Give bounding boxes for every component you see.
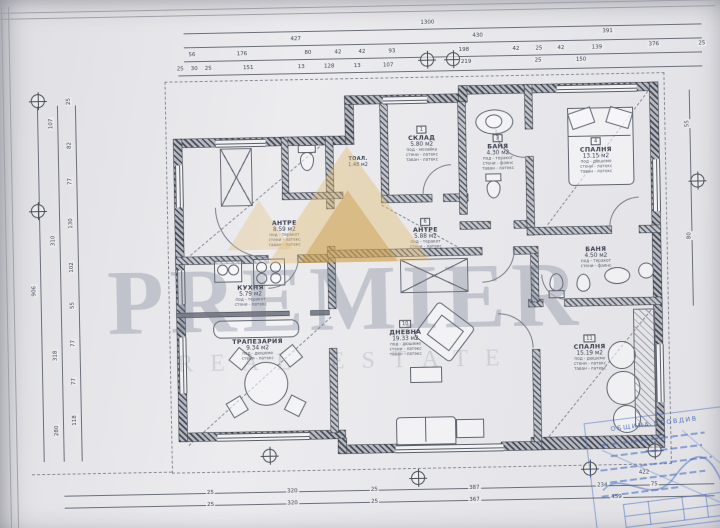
room-label-storage: 1 СКЛАД 5.80 м2 под - мозайка стени - ла…	[405, 115, 438, 162]
scanned-floor-plan-page: 1300427430391561768042429319842254213937…	[0, 0, 720, 528]
dimension-label: 25	[534, 57, 543, 63]
dimension-label: 13	[353, 63, 362, 69]
room-number-box: 1	[417, 126, 426, 134]
dimension-label: 176	[236, 51, 249, 57]
dimension-label: 427	[289, 36, 302, 42]
room-label-bath-top: 3 БАНЯ 4.30 м2 под - теракот стени - фая…	[481, 124, 514, 171]
dimension-label: 56	[187, 52, 196, 58]
room-number-box: 11	[583, 334, 596, 342]
dimension-label: 118	[72, 414, 78, 427]
room-finish: таван - латекс	[406, 157, 438, 162]
dimension-label: 77	[67, 177, 73, 186]
room-finish: таван - латекс	[390, 351, 422, 356]
dimension-label: 128	[323, 63, 336, 69]
dimension-label: 151	[242, 65, 255, 71]
room-label-living: 10 ДНЕВНА 19.33 м2 под - дюшеме стени - …	[389, 310, 422, 357]
dimension-label: 107	[382, 62, 395, 68]
dimension-label: 367	[468, 497, 481, 503]
drawing-sheet: 1300427430391561768042429319842254213937…	[0, 0, 720, 528]
dimension-label: 80	[303, 50, 312, 56]
dimension-label: 376	[648, 41, 661, 47]
stamp-signature-scribble	[585, 407, 720, 528]
dimension-label: 30	[190, 66, 199, 72]
room-label-bedroom-top: 4 СПАЛНЯ 13.15 м2 под - дюшеме стени - л…	[579, 127, 612, 174]
dimension-label: 25	[697, 40, 706, 46]
dimension-label: 107	[48, 118, 54, 131]
room-finish: стени - латекс	[410, 244, 442, 249]
dimension-label: 1300	[419, 20, 435, 26]
dimension-label: 25	[206, 490, 215, 496]
dimension-label: 42	[333, 49, 342, 55]
room-finish: стени - фаянс	[581, 264, 612, 269]
dimension-label: 102	[69, 261, 75, 274]
dimension-label: 25	[534, 45, 543, 51]
dimension-label: 25	[204, 66, 213, 72]
dimension-label: 82	[67, 141, 73, 150]
room-finish: таван - латекс	[269, 242, 301, 247]
dimension-label: 55	[70, 301, 76, 310]
dimension-label: 42	[556, 45, 565, 51]
dimension-label: 13	[297, 64, 306, 70]
room-label-hall-mid: 6 АНТРЕ 5.88 м2 под - теракот стени - ла…	[409, 208, 442, 250]
dimension-label: 318	[53, 350, 59, 363]
dimension-label: 387	[468, 485, 481, 491]
room-finish: таван - латекс	[574, 366, 606, 371]
room-label-dining: ТРАПЕЗАРИЯ 9.34 м2 под - дюшеме стени - …	[232, 338, 283, 362]
room-label-bath-right: БАНЯ 4.50 м2 под - теракот стени - фаянс	[580, 246, 611, 269]
room-area: 1.48 м2	[348, 162, 368, 168]
room-label-hall-left: АНТРЕ 8.59 м2 под - теракот стени - лате…	[268, 219, 301, 247]
dimension-label: 55	[684, 119, 690, 128]
dimension-label: 198	[458, 47, 471, 53]
dimension-label: 391	[601, 28, 614, 34]
room-finish: стени - латекс	[235, 302, 267, 307]
room-label-bedroom-bottom: 11 СПАЛНЯ 15.19 м2 под - дюшеме стени - …	[573, 324, 606, 371]
dimension-label: 219	[460, 59, 473, 65]
dimension-label: 25	[176, 66, 185, 72]
dimension-label: 139	[591, 44, 604, 50]
dimension-label: 42	[511, 46, 520, 52]
dimension-label: 77	[70, 339, 76, 348]
dimension-label: 25	[206, 502, 215, 508]
dimension-label: 42	[357, 49, 366, 55]
dimension-label: 150	[575, 57, 588, 63]
room-number-box: 10	[399, 320, 412, 328]
dimension-label: 280	[54, 425, 60, 438]
room-finish: таван - латекс	[580, 169, 612, 174]
room-number-box: 3	[493, 134, 502, 142]
dimension-label: 320	[286, 488, 299, 494]
dimension-label: 430	[471, 33, 484, 39]
dimension-label: 310	[50, 235, 56, 248]
dimension-label: 320	[286, 500, 299, 506]
dimension-label: 25	[370, 487, 379, 493]
room-number-box: 4	[591, 137, 600, 145]
dimension-label: 80	[686, 231, 692, 240]
dimension-label: 93	[387, 48, 396, 54]
room-label-kitchen: КУХНЯ 5.79 м2 под - теракот стени - лате…	[234, 285, 266, 308]
dimension-label: 906	[31, 285, 37, 298]
room-finish: таван - латекс	[482, 165, 514, 170]
dimension-label: 25	[66, 97, 72, 106]
room-number-box: 6	[421, 218, 430, 226]
room-label-wc: ТОАЛ. 1.48 м2	[348, 156, 368, 168]
dimension-label: 77	[71, 377, 77, 386]
room-finish: стени - латекс	[233, 356, 284, 362]
official-stamp: ОБЩИНА ПЛОВДИВ	[584, 406, 720, 528]
dimension-label: 130	[68, 217, 74, 230]
dimension-label: 25	[370, 499, 379, 505]
